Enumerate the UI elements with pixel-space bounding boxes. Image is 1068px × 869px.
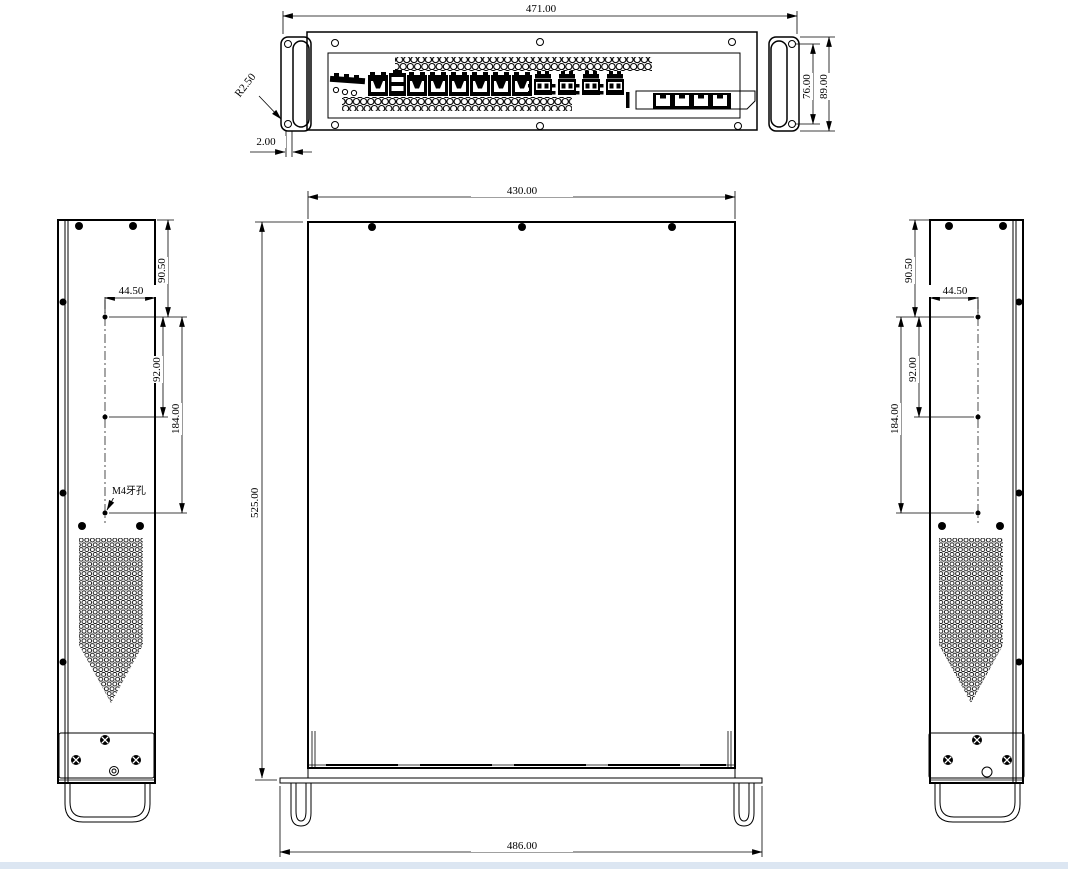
sim-slot-icon xyxy=(626,92,630,108)
dim-label-left-hole-inset: 44.50 xyxy=(103,285,159,297)
vent-band-bottom xyxy=(342,97,572,111)
dim-label-right-hole-pitch: 92.00 xyxy=(907,356,919,383)
front-view xyxy=(250,11,835,157)
rear-tab-seam xyxy=(308,731,735,767)
dim-label-overall-width: 471.00 xyxy=(490,3,592,15)
dim-label-right-top-hole-offset: 90.50 xyxy=(903,257,915,284)
dim-label-panel-thickness: 2.00 xyxy=(246,136,286,148)
right-side-view xyxy=(896,220,1024,822)
top-view xyxy=(255,191,762,857)
handle-right-top xyxy=(734,783,754,826)
right-bottom-bracket xyxy=(929,733,1024,780)
cad-drawing-canvas: 471.00 76.00 89.00 R2.50 2.00 430.00 525… xyxy=(0,0,1068,869)
dim-label-left-hole-pitch: 92.00 xyxy=(151,356,163,383)
right-front-rail xyxy=(1013,220,1016,783)
dim-label-flange-width: 486.00 xyxy=(471,840,573,852)
dim-label-body-width: 430.00 xyxy=(471,185,573,197)
left-dim-lines xyxy=(105,220,187,513)
handle-left-top xyxy=(291,783,311,826)
dim-body-depth-lines xyxy=(255,222,303,780)
front-flange xyxy=(280,768,762,783)
top-cover-screws xyxy=(368,223,676,231)
right-handle xyxy=(935,783,1020,822)
dim-label-ear-slot-pitch: 76.00 xyxy=(801,73,813,100)
dim-slot-radius-leader xyxy=(259,96,281,119)
power-terminal-icon xyxy=(330,73,365,96)
left-bottom-bracket xyxy=(59,733,154,780)
left-side-view xyxy=(58,220,187,822)
right-panel-outline xyxy=(930,220,1023,783)
dim-label-right-hole-inset: 44.50 xyxy=(927,285,983,297)
sfp-cages xyxy=(528,71,624,95)
right-vent-grille xyxy=(939,538,1003,703)
usb-port-icon xyxy=(389,70,406,96)
dim-label-left-top-hole-offset: 90.50 xyxy=(156,257,168,284)
label-m4-thread-hole: M4牙孔 xyxy=(111,486,147,498)
dim-label-left-hole-span: 184.00 xyxy=(170,403,182,435)
right-m4-holes xyxy=(976,300,981,523)
dim-label-panel-height: 89.00 xyxy=(818,73,830,100)
left-handle xyxy=(65,783,150,822)
rack-ear-right xyxy=(769,37,799,131)
left-panel-outline xyxy=(58,220,155,783)
top-cover xyxy=(308,222,735,768)
drawing-linework xyxy=(0,0,1068,869)
dim-label-body-depth: 525.00 xyxy=(249,487,261,519)
vent-band-top xyxy=(395,57,652,71)
left-vent-grille xyxy=(79,538,143,703)
left-m4-holes xyxy=(103,300,108,523)
dim-label-right-hole-span: 184.00 xyxy=(889,403,901,435)
bottom-bar xyxy=(0,862,1068,869)
rj45-quad-block xyxy=(636,91,755,109)
